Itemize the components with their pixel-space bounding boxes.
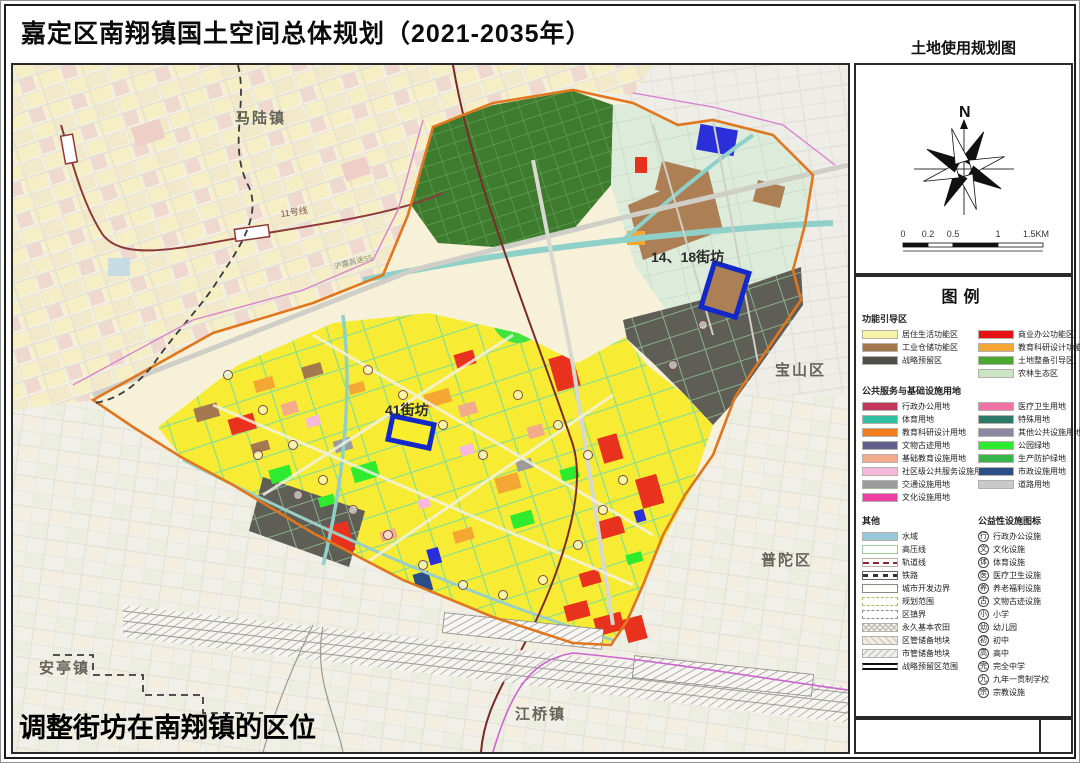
legend-item-label: 行政办公设施 <box>993 531 1041 542</box>
legend-swatch <box>978 454 1014 463</box>
legend-item-label: 基础教育设施用地 <box>902 453 966 464</box>
legend-section-services: 公共服务与基础设施用地 <box>862 384 1065 397</box>
legend-item: 生产防护绿地 <box>978 452 1080 465</box>
facility-circle-icon: 古 <box>978 596 989 607</box>
legend-item-label: 工业仓储功能区 <box>902 342 958 353</box>
region-label-jiangqiao: 江桥镇 <box>515 705 566 723</box>
facility-circle-icon: 高 <box>978 648 989 659</box>
legend-item-label: 文物古迹设施 <box>993 596 1041 607</box>
legend-item-label: 其他公共设施用地 <box>1018 427 1080 438</box>
legend-item-label: 市管储备地块 <box>902 648 950 659</box>
legend-item: 医疗卫生用地 <box>978 400 1080 413</box>
facility-circle-icon: 小 <box>978 609 989 620</box>
region-label-putuo: 普陀区 <box>761 551 812 569</box>
legend-item-label: 文化设施 <box>993 544 1025 555</box>
legend-item-label: 城市开发边界 <box>902 583 950 594</box>
legend-title: 图例 <box>862 283 1065 307</box>
legend-item: 道路用地 <box>978 478 1080 491</box>
compass-scale-box: N 0 0.2 0.5 1 <box>854 63 1073 275</box>
legend-item: 规划范围 <box>862 595 976 608</box>
legend-item: 教育科研设计功能区 <box>978 341 1080 354</box>
legend-item-label: 养老福利设施 <box>993 583 1041 594</box>
legend-item: 市政设施用地 <box>978 465 1080 478</box>
legend-item-label: 市政设施用地 <box>1018 466 1066 477</box>
scale-tick-1: 1 <box>995 229 1000 239</box>
legend-item-label: 农林生态区 <box>1018 368 1058 379</box>
region-label-malu: 马陆镇 <box>235 109 286 127</box>
legend-item: 市管储备地块 <box>862 647 976 660</box>
legend-item: 高 高中 <box>978 647 1065 660</box>
legend-item: 战略预留区 <box>862 354 976 367</box>
legend-swatch <box>978 330 1014 339</box>
legend-item-label: 小学 <box>993 609 1009 620</box>
legend-section-zones: 功能引导区 <box>862 312 1065 325</box>
facility-circle-icon: 宗 <box>978 687 989 698</box>
scale-bar: 0 0.2 0.5 1 1.5KM <box>900 229 1049 251</box>
legend-item-label: 土地整备引导区 <box>1018 355 1074 366</box>
legend-item-label: 九年一贯制学校 <box>993 674 1049 685</box>
legend-item-label: 轨道线 <box>902 557 926 568</box>
legend-swatch <box>978 415 1014 424</box>
legend-item: 其他公共设施用地 <box>978 426 1080 439</box>
legend-item: 行政办公用地 <box>862 400 976 413</box>
map-canvas: 11号线 沪嘉高速S5 <box>13 65 848 752</box>
legend-swatch <box>862 571 898 580</box>
legend-item-label: 铁路 <box>902 570 918 581</box>
legend-item-label: 教育科研设计用地 <box>902 427 966 438</box>
legend-item-label: 医疗卫生设施 <box>993 570 1041 581</box>
facility-circle-icon: 行 <box>978 531 989 542</box>
legend-item: 区管储备地块 <box>862 634 976 647</box>
legend-item: 永久基本农田 <box>862 621 976 634</box>
legend-swatch <box>862 441 898 450</box>
facility-circle-icon: 完 <box>978 661 989 672</box>
legend-item-label: 高中 <box>993 648 1009 659</box>
legend-swatch <box>862 343 898 352</box>
legend-item: 商业办公功能区 <box>978 328 1080 341</box>
legend-item-label: 幼儿园 <box>993 622 1017 633</box>
legend-swatch <box>978 467 1014 476</box>
legend-item: 体 体育设施 <box>978 556 1065 569</box>
scale-tick-05: 0.5 <box>947 229 960 239</box>
legend-swatch <box>862 558 898 567</box>
legend-item: 社区级公共服务设施用地 <box>862 465 976 478</box>
legend-item: 完 完全中学 <box>978 660 1065 673</box>
planning-document-page: 嘉定区南翔镇国土空间总体规划（2021-2035年） 土地使用规划图 <box>0 0 1080 763</box>
legend-item: 养 养老福利设施 <box>978 582 1065 595</box>
legend-item: 土地整备引导区 <box>978 354 1080 367</box>
legend-item-label: 战略预留区范围 <box>902 661 958 672</box>
map-type-label: 土地使用规划图 <box>854 37 1073 58</box>
compass-rose <box>907 112 1021 226</box>
legend-item-label: 高压线 <box>902 544 926 555</box>
legend-item-label: 永久基本农田 <box>902 622 950 633</box>
legend-item-label: 行政办公用地 <box>902 401 950 412</box>
scale-tick-0: 0 <box>900 229 905 239</box>
legend-item-label: 水域 <box>902 531 918 542</box>
legend-swatch <box>862 584 898 593</box>
legend-item: 城市开发边界 <box>862 582 976 595</box>
legend-item-label: 商业办公功能区 <box>1018 329 1074 340</box>
legend-item-label: 教育科研设计功能区 <box>1018 342 1080 353</box>
legend-item-label: 初中 <box>993 635 1009 646</box>
legend-item: 九 九年一贯制学校 <box>978 673 1065 686</box>
legend-item: 幼 幼儿园 <box>978 621 1065 634</box>
legend-item: 交通设施用地 <box>862 478 976 491</box>
legend-swatch <box>862 467 898 476</box>
legend-item-label: 医疗卫生用地 <box>1018 401 1066 412</box>
legend-swatch <box>978 369 1014 378</box>
legend-swatch <box>862 532 898 541</box>
legend-item: 特殊用地 <box>978 413 1080 426</box>
legend-item-label: 文物古迹用地 <box>902 440 950 451</box>
legend-item: 基础教育设施用地 <box>862 452 976 465</box>
facility-circle-icon: 九 <box>978 674 989 685</box>
legend-item: 医 医疗卫生设施 <box>978 569 1065 582</box>
legend-item-label: 体育用地 <box>902 414 934 425</box>
facility-circle-icon: 养 <box>978 583 989 594</box>
legend-item-label: 居住生活功能区 <box>902 329 958 340</box>
legend-swatch <box>862 480 898 489</box>
compass-canvas: N 0 0.2 0.5 1 <box>856 65 1071 273</box>
scale-tick-02: 0.2 <box>922 229 935 239</box>
legend-swatch <box>862 454 898 463</box>
page-title: 嘉定区南翔镇国土空间总体规划（2021-2035年） <box>21 14 592 50</box>
map-caption: 调整街坊在南翔镇的区位 <box>19 712 316 743</box>
legend-item: 铁路 <box>862 569 976 582</box>
block-14-18-label: 14、18街坊 <box>651 249 724 265</box>
region-label-anting: 安亭镇 <box>39 659 90 677</box>
legend-item-label: 体育设施 <box>993 557 1025 568</box>
facility-circle-icon: 体 <box>978 557 989 568</box>
legend-item: 战略预留区范围 <box>862 660 976 673</box>
scale-tick-15km: 1.5KM <box>1023 229 1049 239</box>
legend-swatch <box>862 330 898 339</box>
legend-item: 文 文化设施 <box>978 543 1065 556</box>
legend-item-label: 完全中学 <box>993 661 1025 672</box>
legend-item: 古 文物古迹设施 <box>978 595 1065 608</box>
facility-circle-icon: 文 <box>978 544 989 555</box>
land-use-map: 11号线 沪嘉高速S5 <box>11 63 850 754</box>
legend-section-icons: 公益性设施图标 <box>978 514 1065 527</box>
legend-item-label: 战略预留区 <box>902 355 942 366</box>
legend-section-other: 其他 <box>862 514 976 527</box>
legend-swatch <box>862 415 898 424</box>
legend-swatch <box>862 663 898 670</box>
legend-item-label: 交通设施用地 <box>902 479 950 490</box>
legend-swatch <box>862 402 898 411</box>
legend-swatch <box>862 597 898 606</box>
legend-item: 轨道线 <box>862 556 976 569</box>
legend-item: 农林生态区 <box>978 367 1080 380</box>
legend-item-label: 区镇界 <box>902 609 926 620</box>
legend-item: 行 行政办公设施 <box>978 530 1065 543</box>
facility-circle-icon: 初 <box>978 635 989 646</box>
block-41-outline <box>388 416 434 448</box>
legend-item: 居住生活功能区 <box>862 328 976 341</box>
legend-swatch <box>978 480 1014 489</box>
region-label-baoshan: 宝山区 <box>775 361 826 379</box>
legend-item-label: 道路用地 <box>1018 479 1050 490</box>
block-41-label: 41街坊 <box>385 402 429 418</box>
north-label: N <box>959 104 971 121</box>
legend-item-label: 规划范围 <box>902 596 934 607</box>
legend-item-label: 生产防护绿地 <box>1018 453 1066 464</box>
legend-item: 文物古迹用地 <box>862 439 976 452</box>
legend-item-label: 社区级公共服务设施用地 <box>902 466 990 477</box>
legend-swatch <box>862 428 898 437</box>
legend-swatch <box>862 610 898 619</box>
legend-swatch <box>862 545 898 554</box>
legend-item: 小 小学 <box>978 608 1065 621</box>
legend-item: 文化设施用地 <box>862 491 976 504</box>
legend-item: 初 初中 <box>978 634 1065 647</box>
legend: 图例 功能引导区 居住生活功能区 工业仓储功能区 战 <box>854 275 1073 718</box>
legend-swatch <box>862 636 898 645</box>
legend-swatch <box>978 402 1014 411</box>
legend-swatch <box>978 343 1014 352</box>
title-block-strip <box>854 718 1073 754</box>
legend-item-label: 特殊用地 <box>1018 414 1050 425</box>
legend-item-label: 区管储备地块 <box>902 635 950 646</box>
legend-swatch <box>978 356 1014 365</box>
legend-item-label: 公园绿地 <box>1018 440 1050 451</box>
legend-swatch <box>862 623 898 632</box>
legend-item: 高压线 <box>862 543 976 556</box>
legend-item: 教育科研设计用地 <box>862 426 976 439</box>
legend-item-label: 文化设施用地 <box>902 492 950 503</box>
legend-swatch <box>862 493 898 502</box>
legend-item: 体育用地 <box>862 413 976 426</box>
legend-item: 公园绿地 <box>978 439 1080 452</box>
legend-swatch <box>862 356 898 365</box>
legend-swatch <box>862 649 898 658</box>
facility-circle-icon: 医 <box>978 570 989 581</box>
legend-item: 工业仓储功能区 <box>862 341 976 354</box>
legend-item: 宗 宗教设施 <box>978 686 1065 699</box>
legend-item: 水域 <box>862 530 976 543</box>
legend-item-label: 宗教设施 <box>993 687 1025 698</box>
title-block-divider <box>1039 720 1041 752</box>
facility-circle-icon: 幼 <box>978 622 989 633</box>
legend-item: 区镇界 <box>862 608 976 621</box>
legend-swatch <box>978 441 1014 450</box>
legend-swatch <box>978 428 1014 437</box>
